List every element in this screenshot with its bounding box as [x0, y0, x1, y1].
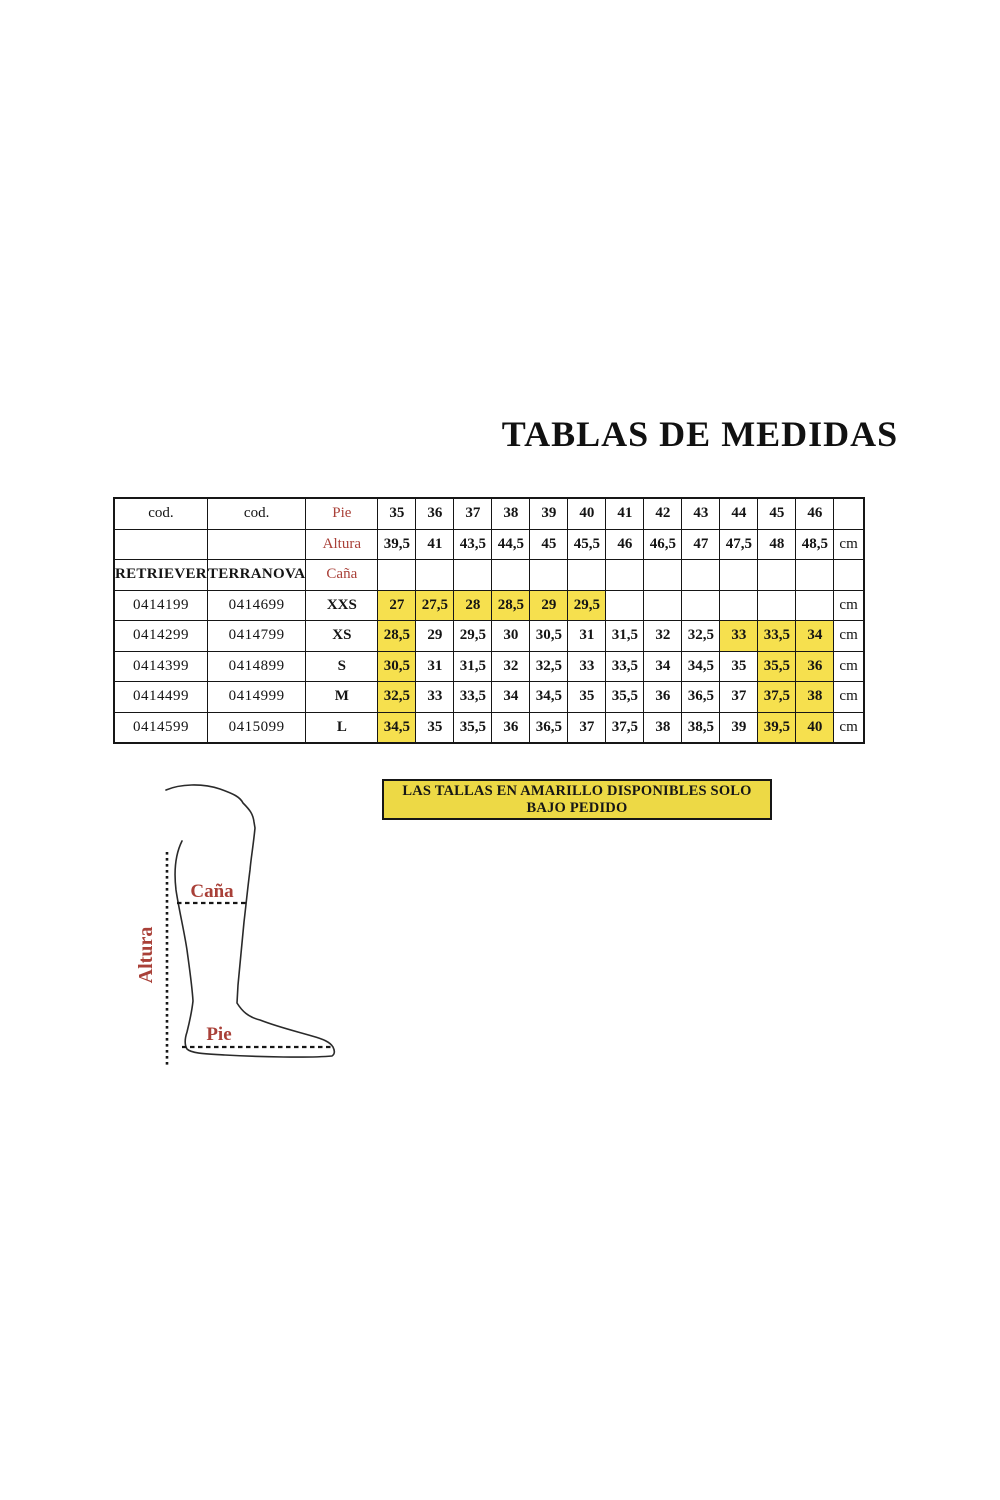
size-table-body: cod.cod.Pie353637383940414243444546Altur…: [114, 498, 864, 743]
empty-cell: [416, 560, 454, 591]
size-cell: 31: [568, 621, 606, 652]
empty-cell: [492, 560, 530, 591]
code-retriever: 0414499: [114, 682, 207, 713]
size-cell-highlighted: 28,5: [492, 590, 530, 621]
size-cell: 34,5: [682, 651, 720, 682]
size-cell: 37: [568, 712, 606, 743]
pie-size-header: 38: [492, 498, 530, 529]
size-label: S: [306, 651, 378, 682]
size-row-xs: 04142990414799XS28,52929,53030,53131,532…: [114, 621, 864, 652]
size-cell-highlighted: 35,5: [758, 651, 796, 682]
size-cell: [644, 590, 682, 621]
code-retriever: 0414199: [114, 590, 207, 621]
diagram-pie-label: Pie: [206, 1024, 231, 1045]
row-label-altura: Altura: [306, 529, 378, 560]
size-cell: [796, 590, 834, 621]
altura-value: 48,5: [796, 529, 834, 560]
altura-value: 46: [606, 529, 644, 560]
pie-size-header: 40: [568, 498, 606, 529]
size-cell-highlighted: 39,5: [758, 712, 796, 743]
size-cell-highlighted: 27: [378, 590, 416, 621]
pie-size-header: 45: [758, 498, 796, 529]
size-cell: 35,5: [454, 712, 492, 743]
unit-cell: cm: [834, 590, 864, 621]
size-cell: 31,5: [454, 651, 492, 682]
size-cell: 37: [720, 682, 758, 713]
size-label: M: [306, 682, 378, 713]
size-cell: 33: [416, 682, 454, 713]
size-cell: 29,5: [454, 621, 492, 652]
page-title: TABLAS DE MEDIDAS: [502, 413, 898, 455]
size-cell: 36: [644, 682, 682, 713]
unit-cell: cm: [834, 621, 864, 652]
size-cell-highlighted: 30,5: [378, 651, 416, 682]
header-row-altura: Altura39,54143,544,54545,54646,54747,548…: [114, 529, 864, 560]
altura-value: 45: [530, 529, 568, 560]
diagram-cana-label: Caña: [190, 881, 234, 902]
size-row-l: 04145990415099L34,53535,53636,53737,5383…: [114, 712, 864, 743]
size-row-xxs: 04141990414699XXS2727,52828,52929,5cm: [114, 590, 864, 621]
unit-cell: cm: [834, 682, 864, 713]
size-cell: [720, 590, 758, 621]
empty-cell: [796, 560, 834, 591]
empty-cell: [606, 560, 644, 591]
pie-size-header: 39: [530, 498, 568, 529]
empty-cell: [378, 560, 416, 591]
size-cell: 35,5: [606, 682, 644, 713]
size-row-m: 04144990414999M32,53333,53434,53535,5363…: [114, 682, 864, 713]
empty-cell: [207, 529, 305, 560]
code-retriever: 0414599: [114, 712, 207, 743]
brand-retriever: RETRIEVER: [114, 560, 207, 591]
pie-size-header: 44: [720, 498, 758, 529]
altura-value: 47: [682, 529, 720, 560]
size-cell: 36,5: [682, 682, 720, 713]
size-cell-highlighted: 29: [530, 590, 568, 621]
altura-value: 41: [416, 529, 454, 560]
row-label-pie: Pie: [306, 498, 378, 529]
altura-value: 48: [758, 529, 796, 560]
size-cell: 38: [644, 712, 682, 743]
size-cell-highlighted: 32,5: [378, 682, 416, 713]
code-retriever: 0414399: [114, 651, 207, 682]
size-cell: 35: [720, 651, 758, 682]
size-cell: 38,5: [682, 712, 720, 743]
size-cell: 36,5: [530, 712, 568, 743]
altura-value: 39,5: [378, 529, 416, 560]
size-cell: 33: [568, 651, 606, 682]
header-row-pie: cod.cod.Pie353637383940414243444546: [114, 498, 864, 529]
size-cell-highlighted: 33,5: [758, 621, 796, 652]
pie-size-header: 43: [682, 498, 720, 529]
unit-cell: cm: [834, 651, 864, 682]
size-cell: 32: [492, 651, 530, 682]
size-cell: 29: [416, 621, 454, 652]
empty-cell: [114, 529, 207, 560]
cod-header-retriever: cod.: [114, 498, 207, 529]
size-cell-highlighted: 34: [796, 621, 834, 652]
empty-cell: [568, 560, 606, 591]
unit-cell-empty: [834, 560, 864, 591]
altura-value: 46,5: [644, 529, 682, 560]
size-chart-page: TABLAS DE MEDIDAS cod.cod.Pie35363738394…: [0, 0, 1000, 1500]
header-row-cana: RETRIEVERTERRANOVACaña: [114, 560, 864, 591]
size-cell: 32,5: [530, 651, 568, 682]
size-cell: 36: [492, 712, 530, 743]
size-cell: 33,5: [606, 651, 644, 682]
pie-size-header: 35: [378, 498, 416, 529]
size-cell: 30: [492, 621, 530, 652]
empty-cell: [530, 560, 568, 591]
unit-cell: cm: [834, 712, 864, 743]
size-cell: 35: [416, 712, 454, 743]
size-cell: 32,5: [682, 621, 720, 652]
empty-cell: [644, 560, 682, 591]
diagram-altura-label: Altura: [135, 927, 157, 984]
size-cell: 31,5: [606, 621, 644, 652]
size-label: XXS: [306, 590, 378, 621]
code-terranova: 0414799: [207, 621, 305, 652]
size-cell: 39: [720, 712, 758, 743]
code-terranova: 0414699: [207, 590, 305, 621]
code-terranova: 0414899: [207, 651, 305, 682]
size-cell-highlighted: 36: [796, 651, 834, 682]
empty-cell: [758, 560, 796, 591]
size-cell-highlighted: 37,5: [758, 682, 796, 713]
size-cell-highlighted: 34,5: [378, 712, 416, 743]
altura-value: 44,5: [492, 529, 530, 560]
size-cell-highlighted: 33: [720, 621, 758, 652]
size-table: cod.cod.Pie353637383940414243444546Altur…: [113, 497, 865, 744]
code-terranova: 0415099: [207, 712, 305, 743]
altura-value: 47,5: [720, 529, 758, 560]
size-cell-highlighted: 29,5: [568, 590, 606, 621]
leg-outline: [166, 785, 334, 1057]
empty-cell: [720, 560, 758, 591]
size-cell: [682, 590, 720, 621]
size-label: XS: [306, 621, 378, 652]
leg-measurement-diagram: Caña Altura Pie: [130, 770, 350, 1080]
code-retriever: 0414299: [114, 621, 207, 652]
size-cell: 34: [644, 651, 682, 682]
size-cell: 34: [492, 682, 530, 713]
cod-header-terranova: cod.: [207, 498, 305, 529]
row-label-cana: Caña: [306, 560, 378, 591]
unit-cell-empty: [834, 498, 864, 529]
size-cell: 37,5: [606, 712, 644, 743]
size-cell-highlighted: 28: [454, 590, 492, 621]
pie-size-header: 36: [416, 498, 454, 529]
size-cell: 33,5: [454, 682, 492, 713]
pie-size-header: 41: [606, 498, 644, 529]
size-label: L: [306, 712, 378, 743]
size-cell-highlighted: 28,5: [378, 621, 416, 652]
size-cell: 35: [568, 682, 606, 713]
pie-size-header: 42: [644, 498, 682, 529]
size-row-s: 04143990414899S30,53131,53232,53333,5343…: [114, 651, 864, 682]
size-cell-highlighted: 38: [796, 682, 834, 713]
altura-value: 45,5: [568, 529, 606, 560]
size-cell-highlighted: 27,5: [416, 590, 454, 621]
size-cell: [758, 590, 796, 621]
unit-cell: cm: [834, 529, 864, 560]
altura-value: 43,5: [454, 529, 492, 560]
size-cell: 30,5: [530, 621, 568, 652]
pie-size-header: 37: [454, 498, 492, 529]
empty-cell: [454, 560, 492, 591]
size-cell: [606, 590, 644, 621]
empty-cell: [682, 560, 720, 591]
pie-size-header: 46: [796, 498, 834, 529]
size-cell: 31: [416, 651, 454, 682]
size-cell-highlighted: 40: [796, 712, 834, 743]
size-cell: 32: [644, 621, 682, 652]
code-terranova: 0414999: [207, 682, 305, 713]
brand-terranova: TERRANOVA: [207, 560, 305, 591]
size-cell: 34,5: [530, 682, 568, 713]
availability-note: LAS TALLAS EN AMARILLO DISPONIBLES SOLO …: [382, 779, 772, 820]
